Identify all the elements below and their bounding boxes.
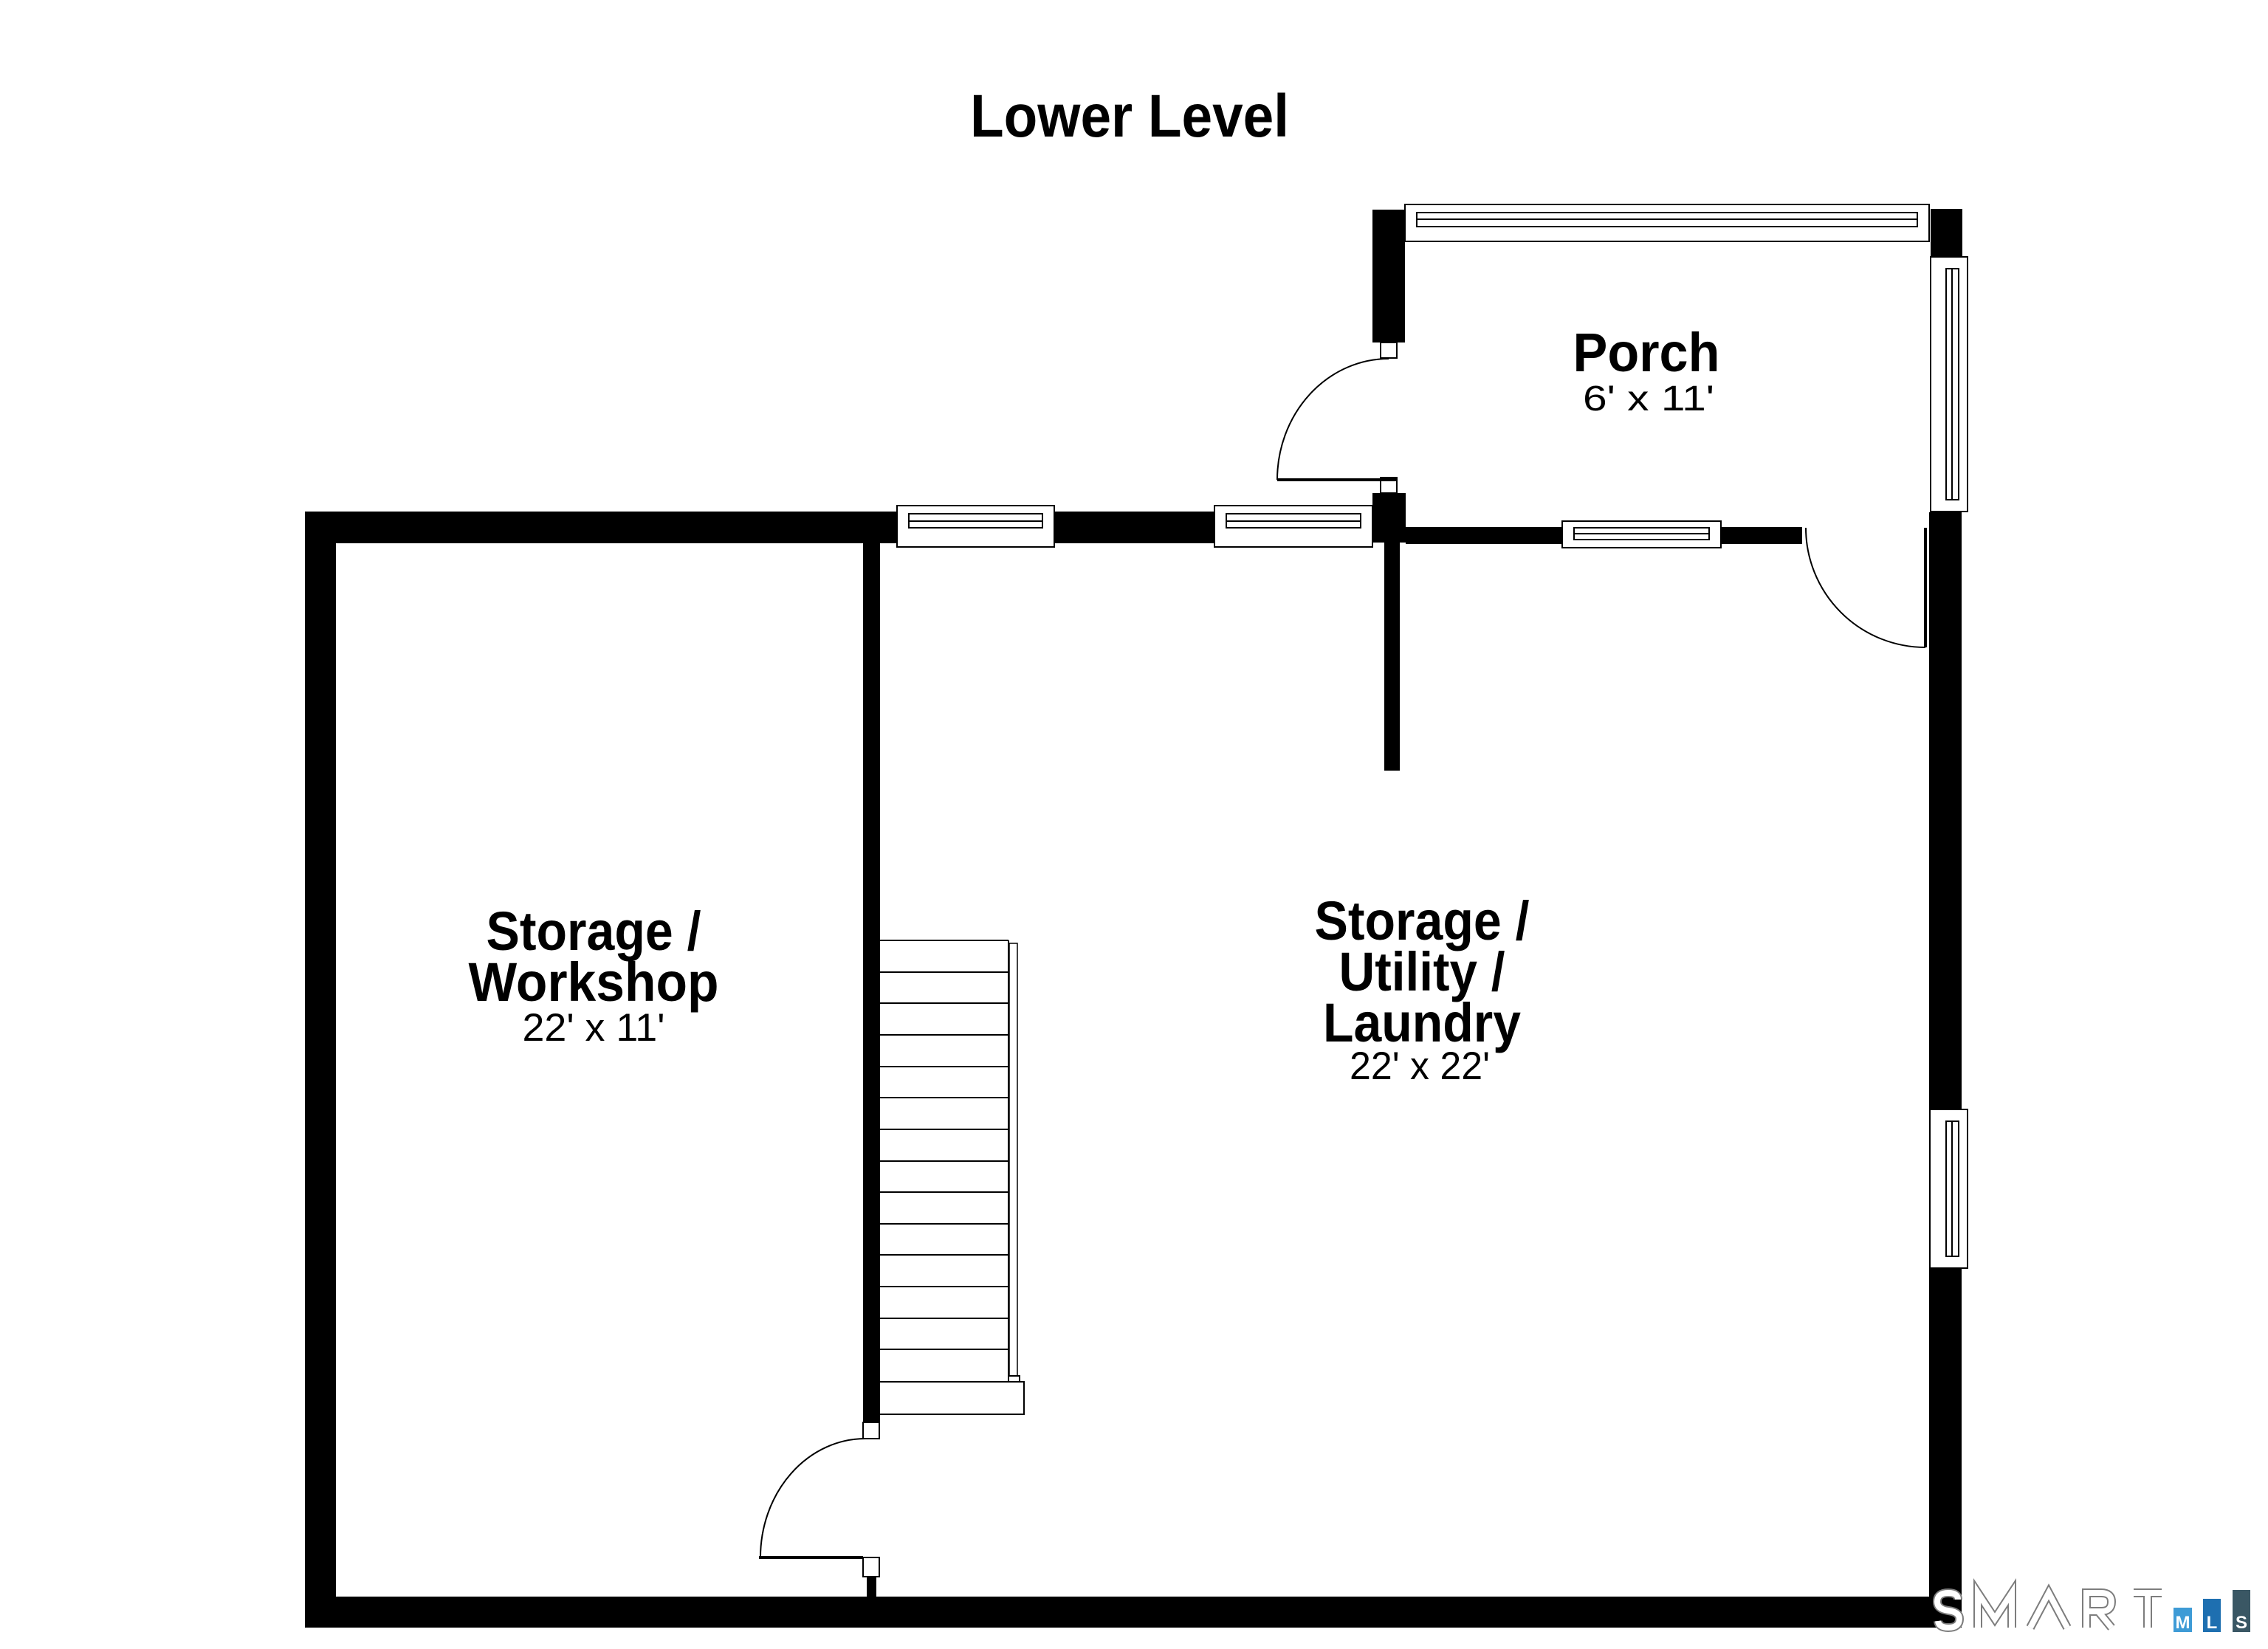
svg-text:Workshop: Workshop — [469, 951, 719, 1013]
svg-text:22' x 22': 22' x 22' — [1350, 1044, 1490, 1088]
svg-text:Porch: Porch — [1573, 322, 1720, 383]
svg-text:6' x 11': 6' x 11' — [1583, 379, 1714, 419]
svg-text:Lower Level: Lower Level — [970, 83, 1289, 150]
svg-text:22' x 11': 22' x 11' — [523, 1006, 665, 1050]
svg-text:M: M — [2176, 1613, 2190, 1633]
svg-text:L: L — [2207, 1613, 2218, 1633]
svg-text:S: S — [2236, 1613, 2247, 1633]
